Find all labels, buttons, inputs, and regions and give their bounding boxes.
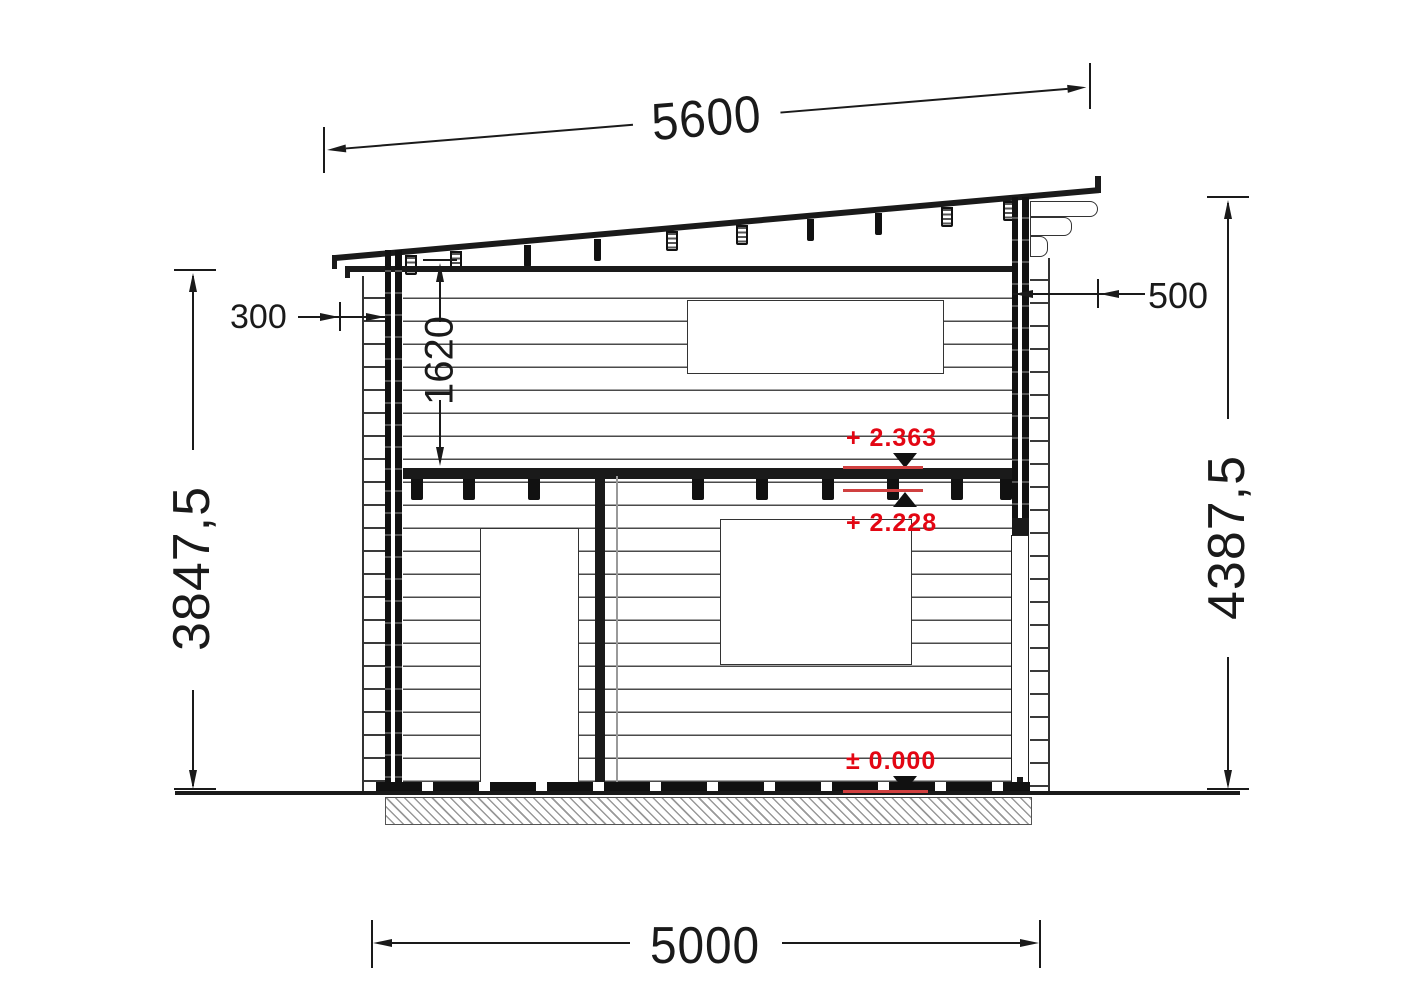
partition-post [595,468,605,792]
level-marker-up-icon [893,492,917,507]
dimension-line [392,942,630,944]
left-wall-log-ends [362,276,387,792]
roof-length-value: 5600 [637,83,777,154]
dimension-line [782,942,1020,944]
extension-tick [423,259,457,261]
level-marker-down-icon [893,776,917,791]
dimension-line [1227,203,1229,419]
roof-right-fascia [1095,176,1101,193]
extension-tick [1039,920,1041,968]
wall-top-plate [345,266,1013,272]
extension-tick [1089,63,1091,109]
floor-joist [411,479,423,500]
arrow-down-icon [189,770,197,789]
right-wall-post [1012,197,1018,518]
loft-height-value: 1620 [414,320,466,402]
level-loft-top-label: + 2.363 [846,424,937,453]
rafter-end [875,213,882,235]
floor-joist [692,479,704,500]
arrow-left-icon [373,939,392,947]
door [480,528,579,792]
floor-joist [822,479,834,500]
dimension-line [439,400,441,450]
dimension-line [192,276,194,450]
foundation-hatch [385,797,1032,825]
arrow-right-icon [366,313,385,321]
floor-joist [951,479,963,500]
purlin-end [941,207,953,227]
floor-joist [756,479,768,500]
height-right-value: 4387,5 [1195,417,1259,657]
dimension-line [439,266,441,322]
arrow-left-icon [1100,290,1119,298]
roof-length-dimension: 5600 [325,57,1089,179]
arrow-right-icon [1020,939,1039,947]
level-line [843,466,923,469]
purlin-end [736,225,748,245]
wall-top-plate-tip [345,266,350,278]
floor-joist [528,479,540,500]
purlin-end [666,231,678,251]
dimension-line [346,124,633,149]
right-post-cap [1012,518,1029,535]
lower-window [720,519,912,665]
level-line [843,790,928,793]
ground-line [175,791,1240,795]
level-loft-bottom-label: + 2.228 [846,509,937,538]
base-width-value: 5000 [636,916,774,976]
left-wall-post [395,250,402,792]
roof-left-drip-edge [332,255,337,269]
dimension-line [780,88,1067,113]
rafter-end [807,219,814,241]
extension-tick [1207,788,1249,790]
right-wall-log-ends [1030,258,1050,792]
stepped-log-end [1030,236,1048,257]
arrow-right-icon [1067,83,1087,93]
stepped-log-end [1030,217,1072,236]
partition-frame-line [616,476,618,790]
floor-joist [1000,479,1012,500]
left-wall-post [385,250,391,792]
extension-tick [174,269,216,271]
stepped-log-end [1030,201,1098,217]
right-overhang-value: 500 [1148,275,1208,317]
dimension-line [1227,657,1229,785]
arrow-right-icon [320,313,339,321]
roof-panel [335,187,1100,261]
arrow-left-icon [327,144,347,154]
level-ground-label: ± 0.000 [846,747,936,776]
extension-tick [323,127,325,173]
arrow-down-icon [436,447,444,466]
purlin-end [405,255,417,275]
right-corner-channel [1011,535,1029,792]
right-wall-post [1022,197,1029,518]
elevation-drawing: + 2.363 + 2.228 ± 0.000 5600 300 500 162… [0,0,1415,1000]
rafter-end [594,239,601,261]
extension-tick [174,788,216,790]
arrow-left-icon [1014,290,1033,298]
rafter-end [524,245,531,267]
upper-window [687,300,944,374]
arrow-down-icon [1224,770,1232,789]
extension-tick [339,302,341,331]
extension-tick [1207,196,1249,198]
left-overhang-value: 300 [230,298,287,337]
extension-tick [1097,279,1099,308]
height-left-value: 3847,5 [160,448,224,688]
floor-joist [463,479,475,500]
loft-floor-beam [403,468,1012,479]
